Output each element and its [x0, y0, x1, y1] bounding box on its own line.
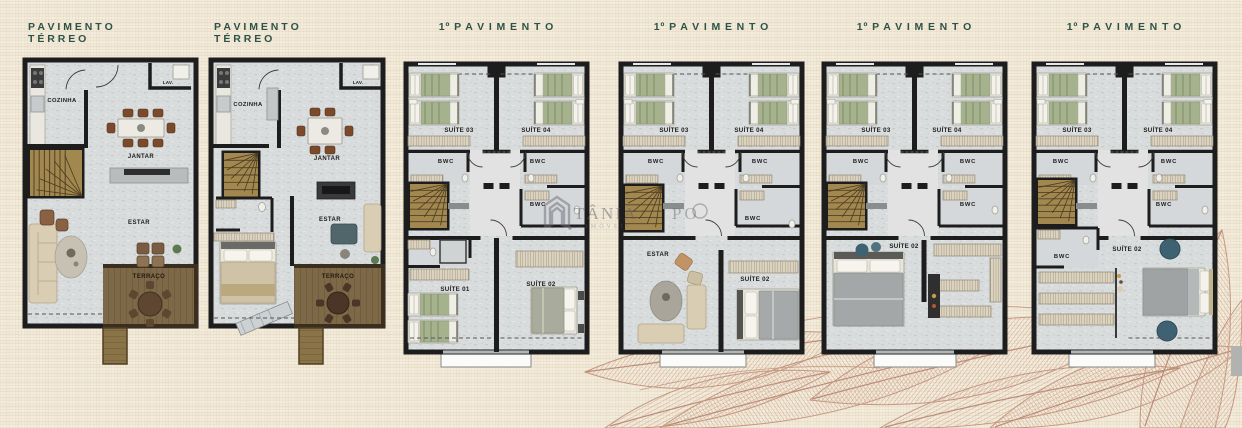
svg-text:SUÍTE 02: SUÍTE 02 [1112, 245, 1141, 253]
svg-text:SUÍTE 03: SUÍTE 03 [1062, 126, 1091, 134]
svg-text:1º P A V I M E N T O: 1º P A V I M E N T O [1067, 21, 1182, 33]
svg-text:BWC: BWC [1156, 202, 1172, 208]
svg-text:SUÍTE 04: SUÍTE 04 [521, 126, 550, 134]
svg-text:BWC: BWC [1053, 159, 1069, 165]
svg-text:TERRAÇO: TERRAÇO [133, 274, 165, 280]
svg-text:BWC: BWC [648, 159, 664, 165]
svg-text:LAV.: LAV. [353, 80, 364, 85]
svg-text:SUÍTE 04: SUÍTE 04 [932, 126, 961, 134]
svg-text:BWC: BWC [745, 216, 761, 222]
svg-text:COZINHA: COZINHA [233, 102, 263, 108]
svg-text:TERRAÇO: TERRAÇO [322, 274, 354, 280]
svg-text:BWC: BWC [960, 202, 976, 208]
svg-text:P A V I M E N T O: P A V I M E N T O [28, 21, 113, 33]
svg-text:SUÍTE 03: SUÍTE 03 [659, 126, 688, 134]
svg-text:JANTAR: JANTAR [128, 154, 155, 160]
svg-text:BWC: BWC [853, 159, 869, 165]
svg-text:BWC: BWC [752, 159, 768, 165]
svg-text:SUÍTE 03: SUÍTE 03 [861, 126, 890, 134]
svg-text:COZINHA: COZINHA [47, 98, 77, 104]
svg-text:1º P A V I M E N T O: 1º P A V I M E N T O [439, 21, 554, 33]
svg-text:T É R R E O: T É R R E O [28, 32, 86, 45]
svg-text:SUÍTE 01: SUÍTE 01 [440, 285, 469, 293]
svg-text:SUÍTE 04: SUÍTE 04 [734, 126, 763, 134]
svg-text:JANTAR: JANTAR [314, 156, 341, 162]
svg-text:BWC: BWC [530, 202, 546, 208]
svg-text:SUÍTE 04: SUÍTE 04 [1143, 126, 1172, 134]
svg-text:SUÍTE 02: SUÍTE 02 [740, 275, 769, 283]
svg-text:ESTAR: ESTAR [128, 220, 150, 226]
svg-text:BWC: BWC [1161, 159, 1177, 165]
svg-text:LAV.: LAV. [163, 80, 174, 85]
svg-text:—— I M Ó V E I S: —— I M Ó V E I S [569, 222, 630, 230]
svg-text:ESTAR: ESTAR [319, 217, 341, 223]
svg-text:T É R R E O: T É R R E O [214, 32, 272, 45]
svg-text:BWC: BWC [1054, 254, 1070, 260]
svg-text:BWC: BWC [438, 159, 454, 165]
svg-text:1º P A V I M E N T O: 1º P A V I M E N T O [654, 21, 769, 33]
svg-text:SUÍTE 03: SUÍTE 03 [444, 126, 473, 134]
svg-text:BWC: BWC [530, 159, 546, 165]
svg-text:P A V I M E N T O: P A V I M E N T O [214, 21, 299, 33]
svg-text:ESTAR: ESTAR [647, 252, 669, 258]
svg-text:PO: PO [672, 204, 700, 223]
svg-text:TÂNIA: TÂNIA [574, 204, 638, 223]
svg-text:SUÍTE 02: SUÍTE 02 [889, 242, 918, 250]
svg-text:BWC: BWC [960, 159, 976, 165]
svg-text:1º P A V I M E N T O: 1º P A V I M E N T O [857, 21, 972, 33]
